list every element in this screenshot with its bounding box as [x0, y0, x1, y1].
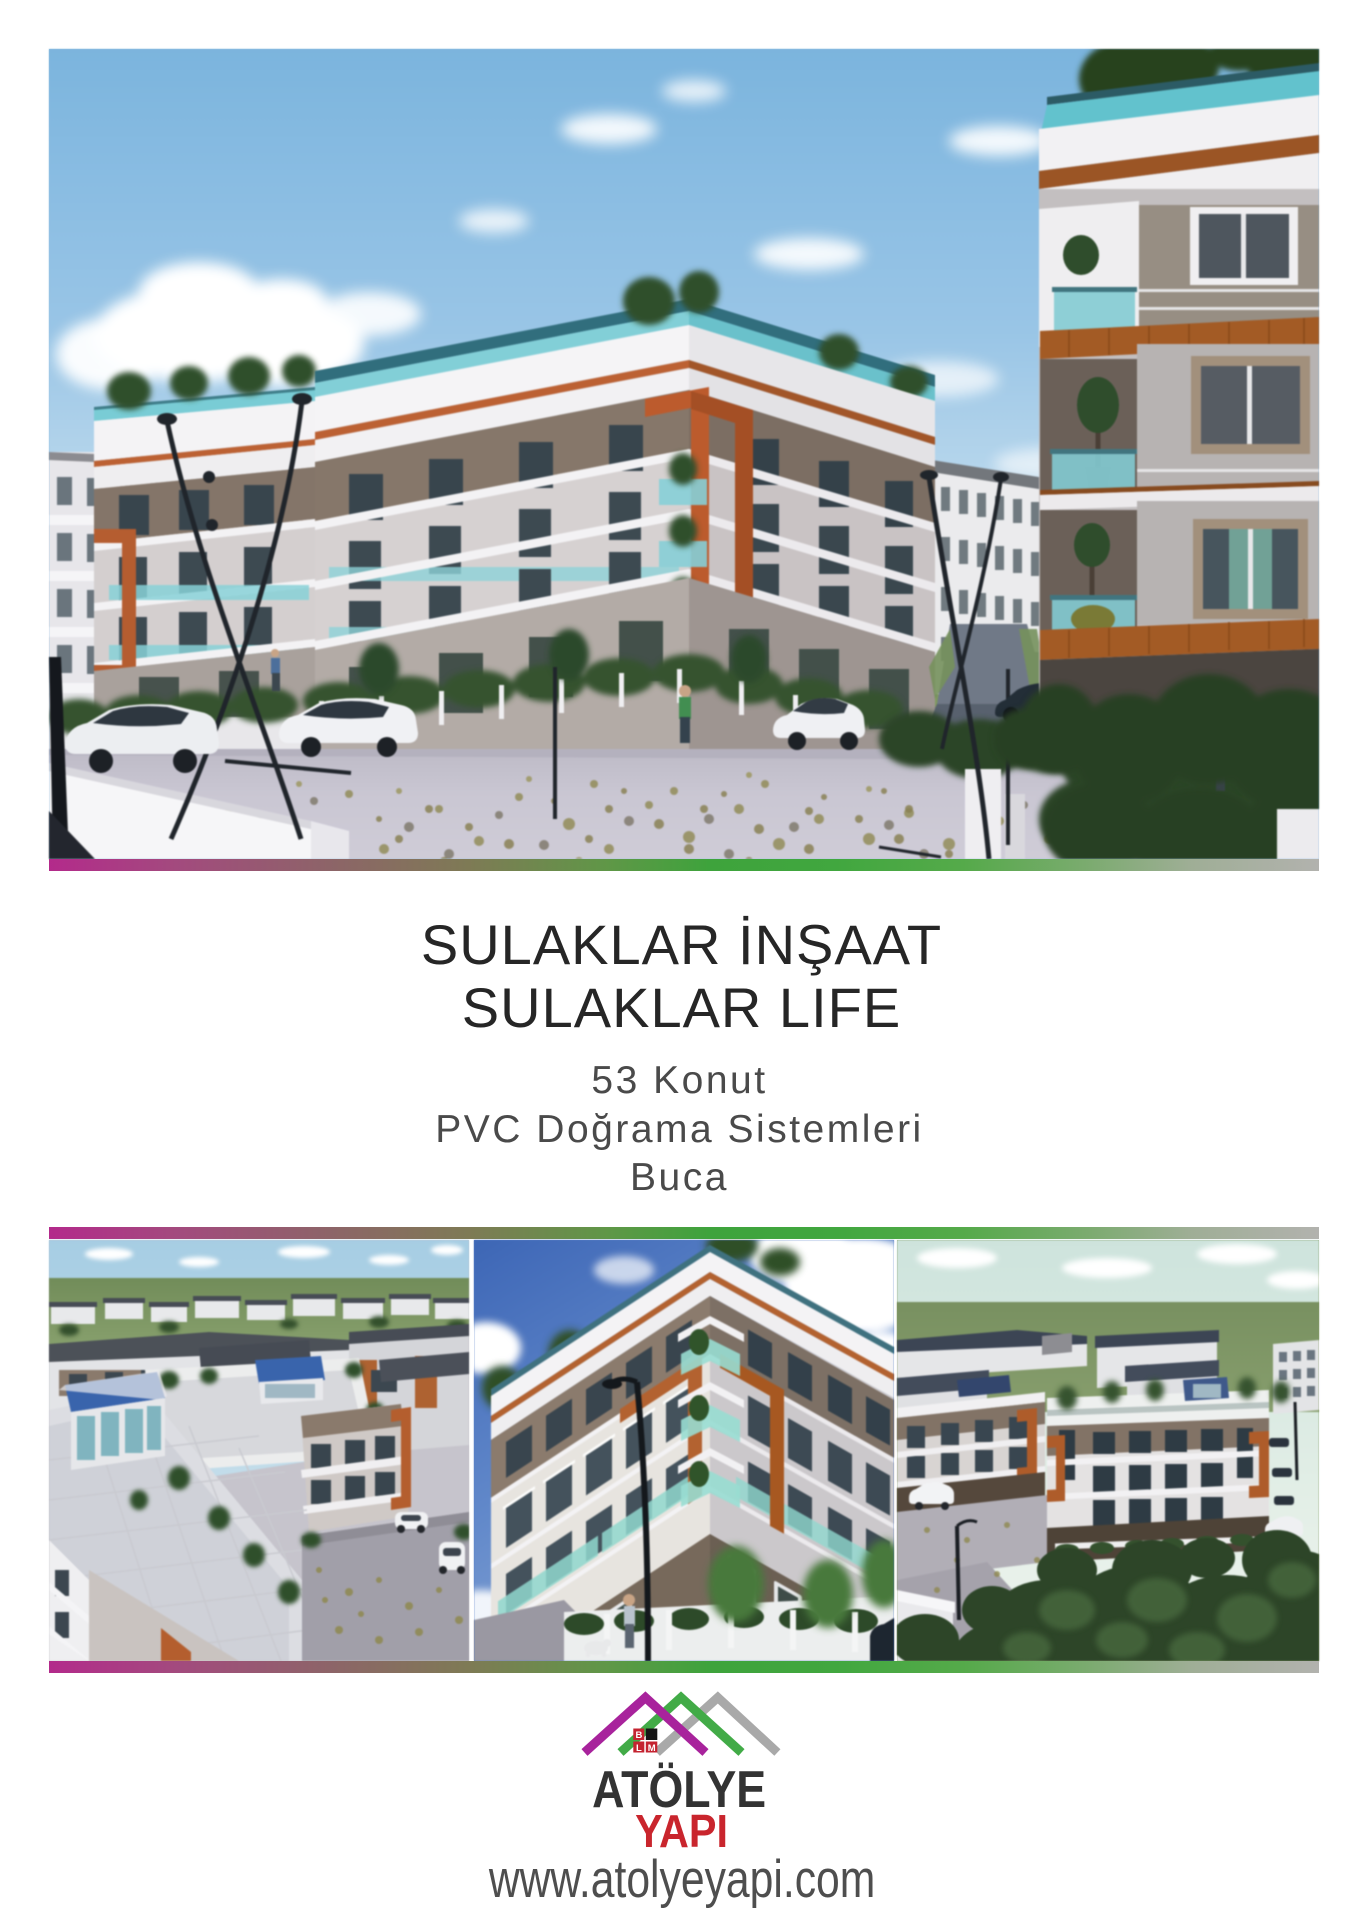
svg-text:L: L	[636, 1743, 642, 1754]
svg-text:M: M	[648, 1743, 656, 1754]
svg-text:B: B	[635, 1730, 642, 1741]
